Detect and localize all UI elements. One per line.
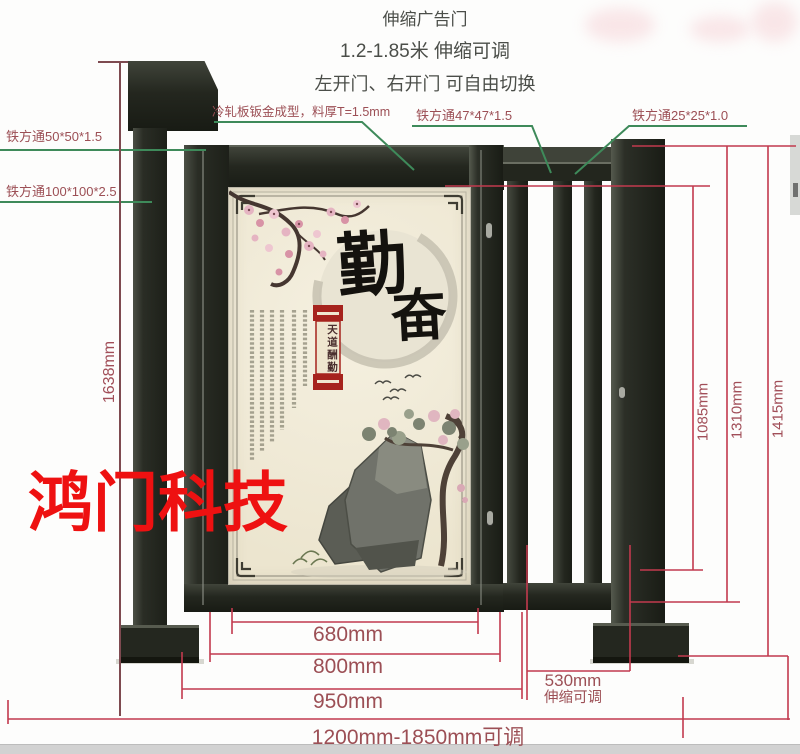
dim-telescopic-value: 530mm <box>523 672 623 691</box>
frame-highlight <box>480 150 482 605</box>
callout-tube-100: 铁方通100*100*2.5 <box>6 181 117 200</box>
watermark-text: 鸿门科技 <box>28 450 288 544</box>
left-post <box>133 128 167 632</box>
noise-blob <box>752 2 797 42</box>
door-bottom-rail <box>184 584 504 612</box>
calligraphy-fen: 奋 <box>390 287 449 346</box>
fence-top-rail <box>503 147 614 181</box>
gate-product-photo: 勤 奋 天道酬勤 <box>0 0 800 754</box>
right-post <box>611 139 665 628</box>
fence-bar <box>553 181 572 584</box>
door-switch-line: 左开门、右开门 可自由切换 <box>270 70 580 96</box>
product-title: 伸缩广告门 <box>270 5 580 30</box>
right-post-base <box>593 623 689 663</box>
rock-painting <box>291 409 469 579</box>
fence-bar <box>584 181 602 584</box>
poem-text-columns <box>252 310 305 460</box>
door-right-stile <box>469 145 503 612</box>
grass-strokes <box>293 551 327 565</box>
motor-housing <box>128 61 218 131</box>
door-top-rail <box>184 145 504 190</box>
dim-total-height: 1415mm <box>770 380 787 438</box>
image-bottom-strip <box>0 744 800 754</box>
edge-artifact <box>793 183 798 197</box>
size-range-line: 1.2-1.85米 伸缩可调 <box>270 36 580 63</box>
left-post-base <box>119 625 199 663</box>
callout-tube-47: 铁方通47*47*1.5 <box>416 105 512 124</box>
noise-blob <box>690 16 750 42</box>
callout-tube-25: 铁方通25*25*1.0 <box>632 105 728 124</box>
dim-post-height: 1638mm <box>101 341 119 403</box>
dim-fence-height: 1085mm <box>695 383 712 441</box>
birds-flock <box>375 375 421 400</box>
dim-telescopic-note: 伸缩可调 <box>523 691 623 707</box>
dim-door-width: 800mm <box>288 655 408 679</box>
dim-line-1638 <box>98 62 128 716</box>
dim-frame-height: 1310mm <box>729 381 746 439</box>
callout-cold-rolled-plate: 冷轧板钣金成型，料厚T=1.5mm <box>212 101 390 120</box>
dim-leaf-width: 950mm <box>288 690 408 714</box>
door-lock-handle <box>486 223 492 238</box>
edge-artifact <box>790 135 800 215</box>
noise-blob <box>585 8 655 42</box>
post-keyhole <box>619 387 625 398</box>
dim-telescopic: 530mm 伸缩可调 <box>523 672 623 707</box>
callout-tube-50: 铁方通50*50*1.5 <box>6 126 102 145</box>
fence-bottom-rail <box>503 583 614 610</box>
banner-text: 天道酬勤 <box>318 324 340 374</box>
fence-bar <box>507 181 528 584</box>
dim-panel-width: 680mm <box>288 623 408 647</box>
door-hinge <box>487 511 493 525</box>
